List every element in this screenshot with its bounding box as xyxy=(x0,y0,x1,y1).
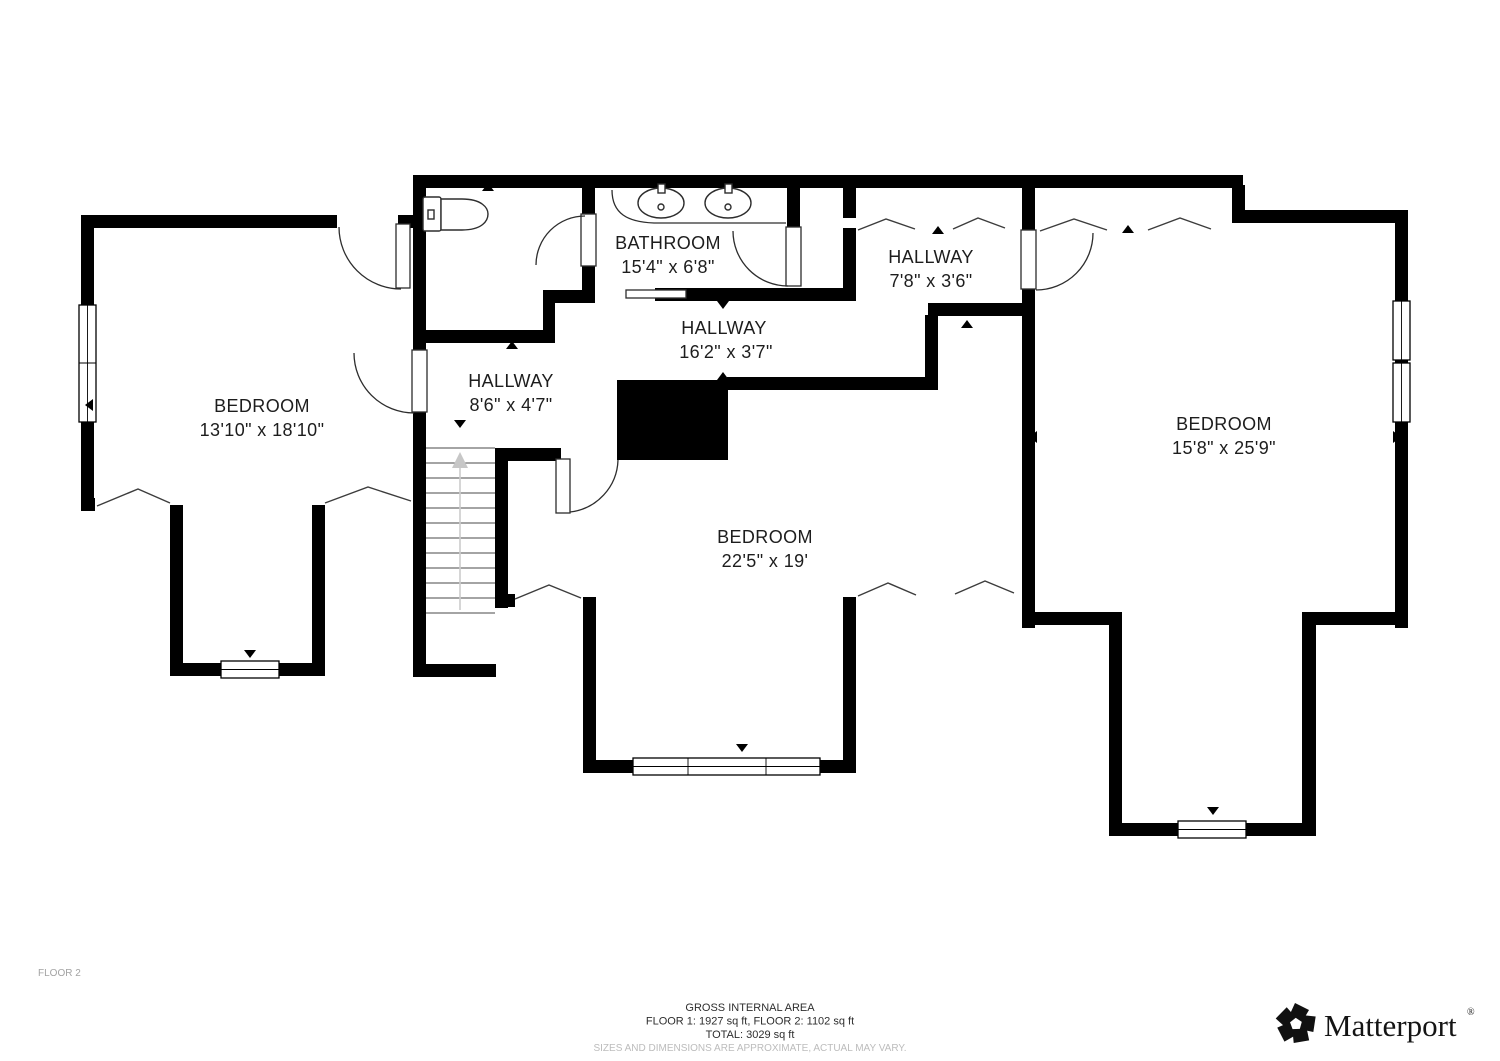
total-area-line: TOTAL: 3029 sq ft xyxy=(706,1029,795,1041)
room-labels: BATHROOM 15'4" x 6'8" HALLWAY 7'8" x 3'6… xyxy=(200,233,1276,571)
room-name: BEDROOM xyxy=(1176,414,1272,434)
door-right-bedroom xyxy=(1021,230,1093,290)
door-left-bedroom-top xyxy=(339,224,410,289)
matterport-logo: Matterport ® xyxy=(1273,1003,1475,1049)
room-dimensions: 15'8" x 25'9" xyxy=(1172,438,1276,458)
room-label-hallway-north: HALLWAY 7'8" x 3'6" xyxy=(888,247,974,291)
room-name: HALLWAY xyxy=(681,318,767,338)
door-toilet-room xyxy=(536,214,596,266)
room-name: HALLWAY xyxy=(888,247,974,267)
chimney-block xyxy=(617,380,728,460)
matterport-wordmark: Matterport xyxy=(1324,1008,1457,1043)
room-label-bedroom-middle: BEDROOM 22'5" x 19' xyxy=(717,527,813,571)
doors xyxy=(339,214,1093,513)
room-name: HALLWAY xyxy=(468,371,554,391)
matterport-pinwheel-icon xyxy=(1273,1003,1320,1049)
window-right-bedroom-east-1 xyxy=(1393,301,1410,360)
door-middle-bedroom xyxy=(556,459,618,513)
window-right-bedroom-east-2 xyxy=(1393,363,1410,422)
sink-icon xyxy=(638,184,684,218)
room-dimensions: 22'5" x 19' xyxy=(722,551,809,571)
floor-plan-page: BATHROOM 15'4" x 6'8" HALLWAY 7'8" x 3'6… xyxy=(0,0,1500,1061)
room-dimensions: 7'8" x 3'6" xyxy=(889,271,972,291)
room-label-bedroom-left: BEDROOM 13'10" x 18'10" xyxy=(200,396,325,440)
staircase xyxy=(426,448,495,613)
room-name: BEDROOM xyxy=(214,396,310,416)
door-bathroom xyxy=(733,227,801,286)
toilet-icon xyxy=(423,197,488,231)
floor-plan-canvas: BATHROOM 15'4" x 6'8" HALLWAY 7'8" x 3'6… xyxy=(0,0,1500,1061)
bathroom-vanity xyxy=(612,184,786,223)
room-label-hallway-center: HALLWAY 16'2" x 3'7" xyxy=(679,318,773,362)
stairs-up-arrow-icon xyxy=(452,452,468,610)
room-name: BATHROOM xyxy=(615,233,721,253)
gross-internal-area-title: GROSS INTERNAL AREA xyxy=(685,1002,815,1014)
room-name: BEDROOM xyxy=(717,527,813,547)
room-dimensions: 8'6" x 4'7" xyxy=(469,395,552,415)
floor-label: FLOOR 2 xyxy=(38,968,81,979)
disclaimer-text: SIZES AND DIMENSIONS ARE APPROXIMATE, AC… xyxy=(593,1043,906,1054)
dimension-arrows xyxy=(85,183,1401,815)
door-left-bedroom-hallway xyxy=(354,350,427,413)
floor-areas-line: FLOOR 1: 1927 sq ft, FLOOR 2: 1102 sq ft xyxy=(646,1016,854,1028)
room-dimensions: 15'4" x 6'8" xyxy=(621,257,715,277)
room-label-hallway-west: HALLWAY 8'6" x 4'7" xyxy=(468,371,554,415)
area-summary: GROSS INTERNAL AREA FLOOR 1: 1927 sq ft,… xyxy=(593,1002,906,1054)
window-middle-dormer xyxy=(633,758,820,775)
walls xyxy=(81,175,1408,836)
room-label-bathroom: BATHROOM 15'4" x 6'8" xyxy=(615,233,721,277)
sliding-door-bathroom xyxy=(626,290,686,298)
sink-icon xyxy=(705,184,751,218)
window-right-dormer xyxy=(1178,821,1246,838)
room-label-bedroom-right: BEDROOM 15'8" x 25'9" xyxy=(1172,414,1276,458)
registered-trademark: ® xyxy=(1467,1007,1475,1018)
window-left-dormer xyxy=(221,661,279,678)
room-dimensions: 13'10" x 18'10" xyxy=(200,420,325,440)
room-dimensions: 16'2" x 3'7" xyxy=(679,342,773,362)
